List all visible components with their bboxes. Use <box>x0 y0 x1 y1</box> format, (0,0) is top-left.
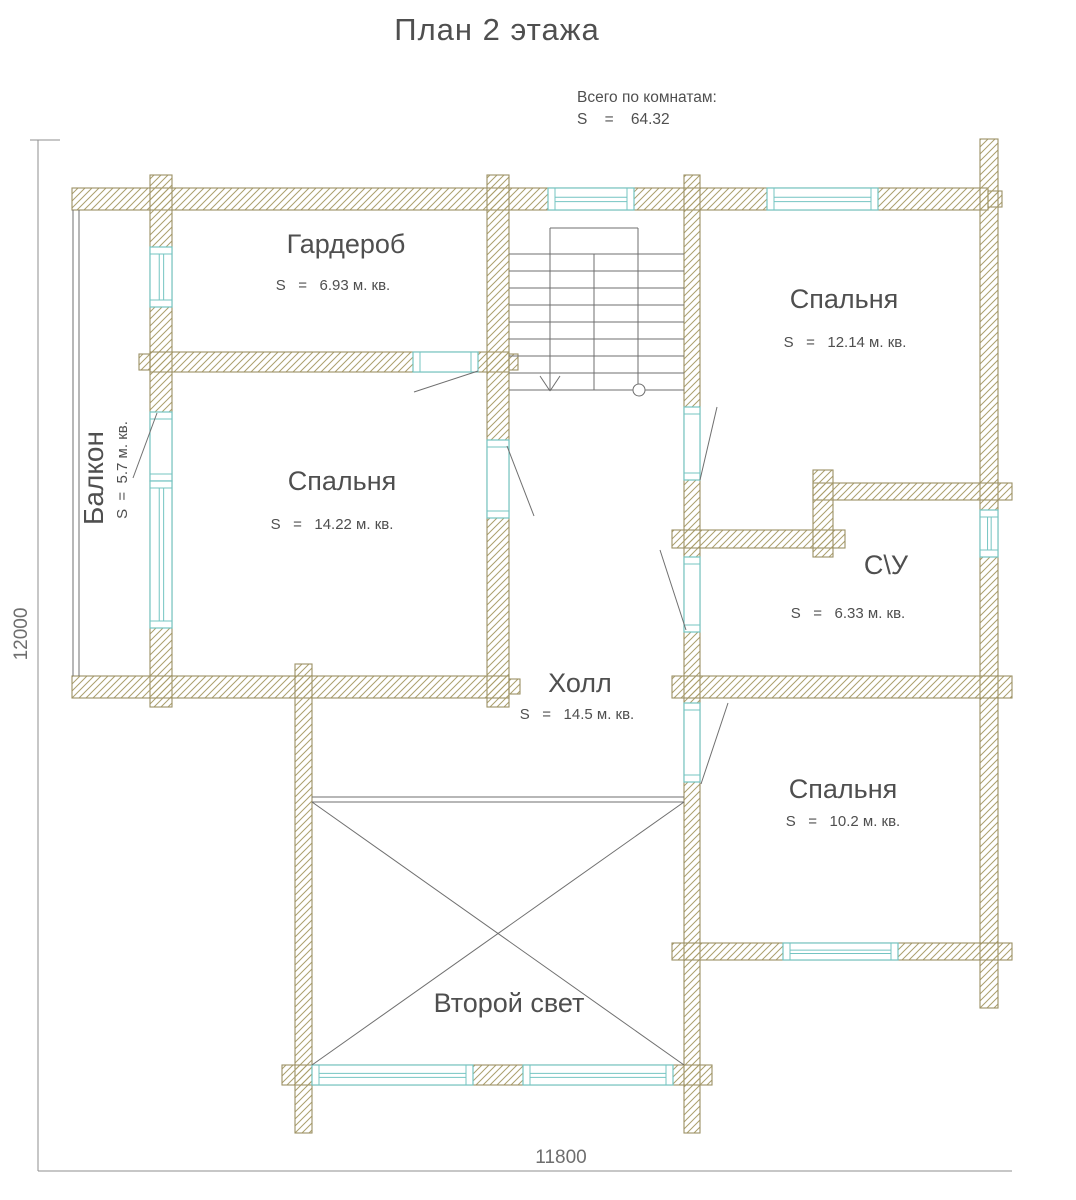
window-bedroom-left-west <box>150 481 172 628</box>
room-area-bedroom-top-right: S = 12.14 м. кв. <box>784 334 907 351</box>
window-stairs-north <box>548 188 634 210</box>
room-area-balcony: S = 5.7 м. кв. <box>114 421 131 519</box>
door-swing-line <box>700 407 717 480</box>
stairs-line <box>540 376 550 391</box>
door-bathroom <box>684 557 700 632</box>
page-title: План 2 этажа <box>394 12 599 47</box>
room-label-second-light: Второй свет <box>434 988 585 1018</box>
window-bedroom-tr-north <box>767 188 878 210</box>
door-swing-line <box>507 446 534 516</box>
summary-label: Всего по комнатам: <box>577 89 717 106</box>
door-bedroom-br <box>684 703 700 782</box>
room-label-bedroom-top-right: Спальня <box>790 284 899 314</box>
dimension-left: 12000 <box>11 608 32 661</box>
windows-doors-layer <box>150 188 998 1085</box>
stairs-start-circle <box>633 384 645 396</box>
wall-bathroom-jog <box>813 470 833 557</box>
wall-secondlight-west <box>295 664 312 1133</box>
room-area-bedroom-left: S = 14.22 м. кв. <box>271 516 394 533</box>
wall-mid-south-east <box>672 676 1012 698</box>
door-garderob <box>413 352 478 372</box>
room-label-bathroom: С\У <box>864 550 909 580</box>
window-secondlight-south-2 <box>523 1065 673 1085</box>
wall-mid-south-west <box>72 676 509 698</box>
stairs-line <box>550 376 560 391</box>
room-label-hall: Холл <box>548 668 612 698</box>
wall-garderob-south-nub-w <box>139 354 150 370</box>
door-swing-line <box>701 703 728 784</box>
room-area-bathroom: S = 6.33 м. кв. <box>791 605 905 622</box>
window-bedroom-br-south <box>783 943 898 960</box>
room-area-hall: S = 14.5 м. кв. <box>520 706 634 723</box>
wall-bathroom-north <box>813 483 1012 500</box>
wall-hall-east <box>684 175 700 1133</box>
window-bathroom-east <box>980 510 998 557</box>
wall-east <box>980 139 998 1008</box>
floor-plan-drawing: План 2 этажа Всего по комнатам: S = 64.3… <box>0 0 1076 1200</box>
door-swing-line <box>414 371 478 392</box>
wall-mid-south-nub <box>509 679 520 694</box>
dimension-bottom: 11800 <box>535 1147 586 1168</box>
room-area-bedroom-bottom-right: S = 10.2 м. кв. <box>786 813 900 830</box>
room-label-bedroom-bottom-right: Спальня <box>789 774 898 804</box>
door-bedroom-left <box>487 440 509 518</box>
window-secondlight-south-1 <box>312 1065 473 1085</box>
room-label-bedroom-left: Спальня <box>288 466 397 496</box>
floor-plan-page: План 2 этажа Всего по комнатам: S = 64.3… <box>0 0 1076 1200</box>
summary-area-value: S = 64.32 <box>577 111 670 128</box>
room-label-balcony: Балкон <box>78 431 109 525</box>
door-bedroom-tr <box>684 407 700 480</box>
room-area-garderob: S = 6.93 м. кв. <box>276 277 390 294</box>
room-label-garderob: Гардероб <box>287 229 406 259</box>
window-garderob-west <box>150 247 172 307</box>
door-swing-line <box>660 550 686 630</box>
